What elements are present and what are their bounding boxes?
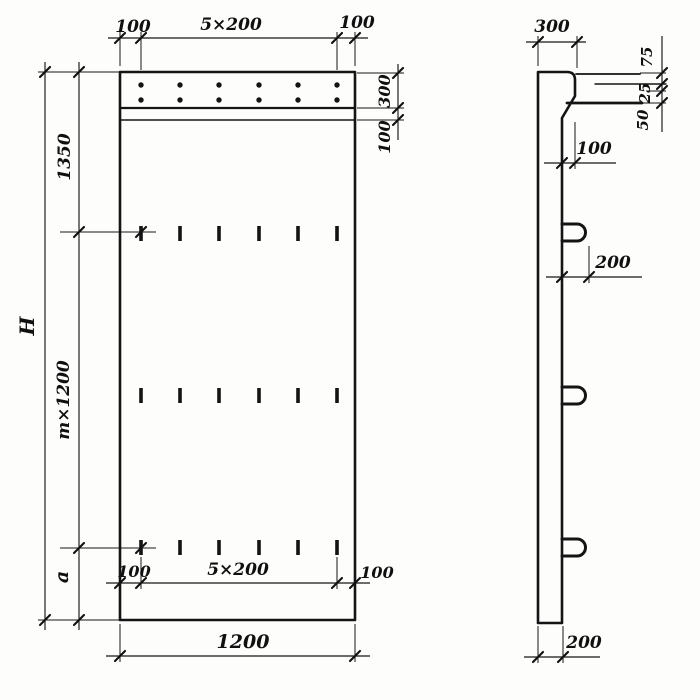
dim-label-bottom-left-100: 100 [117,562,150,581]
dim-label-side-bottom-200: 200 [565,633,602,653]
dim-label-50: 50 [634,109,652,130]
front-panel-outline [120,72,355,620]
dim-label-1350: 1350 [55,133,75,180]
drawing-sheet: 100 5×200 100 H 1350 m×1200 a [0,0,700,700]
front-width-dimension: 1200 [106,624,370,662]
dim-label-mx1200: m×1200 [54,360,74,440]
slot-mark-row-3 [139,540,339,555]
front-top-dimension: 100 5×200 100 [108,13,375,70]
dim-label-75: 75 [638,47,656,68]
technical-drawing: 100 5×200 100 H 1350 m×1200 a [0,0,700,700]
side-view: 300 75 25 50 100 [524,17,667,663]
slot-mark-row-1 [139,226,339,241]
dim-label-1200: 1200 [217,631,270,653]
dim-label-height-H: H [15,315,39,336]
dim-label-side-100: 100 [576,139,612,159]
slot-mark-row-2 [139,388,339,403]
side-loop-dimension: 200 [546,246,642,283]
side-right-stack-dimension: 75 25 50 [634,36,667,132]
side-top-dimension: 300 [526,17,586,68]
dim-label-side-300: 300 [534,17,570,37]
front-view: 100 5×200 100 H 1350 m×1200 a [15,13,404,662]
lifting-loop-3 [562,539,586,556]
front-bottom-inner-dimension: 100 5×200 100 [106,557,394,589]
dim-label-top-center-5x200: 5×200 [200,15,262,35]
front-right-dimensions: 300 100 [357,64,404,154]
anchor-dot-grid [138,82,339,102]
side-bottom-dimension: 200 [524,626,602,663]
lifting-loop-1 [562,224,586,241]
dim-label-top-right-100: 100 [339,13,375,33]
front-left-dimensions: H 1350 m×1200 a [15,62,156,630]
side-ledge-dimension: 100 [544,122,616,169]
dim-label-strip-100: 100 [375,120,394,153]
dim-label-top-left-100: 100 [115,17,151,37]
dim-label-strip-300: 300 [375,74,394,107]
dim-label-bottom-right-100: 100 [360,563,393,582]
dim-label-25: 25 [636,83,654,105]
dim-label-bottom-center-5x200: 5×200 [207,560,269,580]
dim-label-a: a [51,571,73,583]
dim-label-loop-200: 200 [594,253,631,273]
lifting-loop-2 [562,387,586,404]
